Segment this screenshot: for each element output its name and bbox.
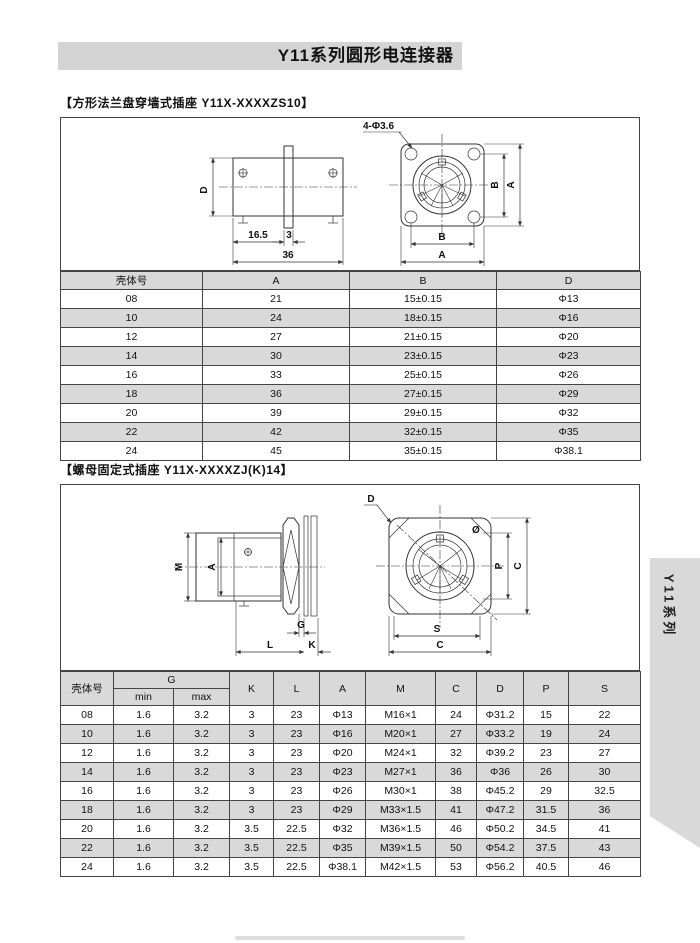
column-header: A — [203, 272, 350, 290]
table-section1: 壳体号ABD 082115±0.15Φ13102418±0.15Φ1612272… — [60, 271, 641, 461]
table-cell: 3.2 — [174, 782, 230, 801]
table-cell: 24 — [569, 725, 641, 744]
technical-drawing-nut-socket: M A G L K D — [61, 485, 639, 670]
contact-spokes — [419, 173, 465, 208]
table-cell: 43 — [569, 839, 641, 858]
table-row: 241.63.23.522.5Φ38.1M42×1.553Φ56.240.546 — [61, 858, 641, 877]
table-cell: 27 — [203, 328, 350, 347]
table-cell: 22 — [569, 706, 641, 725]
column-header: M — [366, 672, 436, 706]
table-cell: Φ39.2 — [477, 744, 524, 763]
table-cell: 3.2 — [174, 744, 230, 763]
column-header: L — [274, 672, 320, 706]
dim-label-b-h: B — [438, 232, 445, 243]
table-cell: 20 — [61, 820, 114, 839]
table-cell: 22.5 — [274, 820, 320, 839]
table-cell: 27 — [569, 744, 641, 763]
table-cell: 34.5 — [524, 820, 569, 839]
table-cell: Φ13 — [320, 706, 366, 725]
table-row: 203929±0.15Φ32 — [61, 404, 641, 423]
table-cell: 29±0.15 — [350, 404, 497, 423]
table-cell: 3.2 — [174, 858, 230, 877]
dim-label-s: S — [434, 624, 441, 635]
dim-label-3: 3 — [286, 230, 292, 241]
table-cell: Φ29 — [320, 801, 366, 820]
table-cell: 3.2 — [174, 801, 230, 820]
table-cell: 14 — [61, 347, 203, 366]
table-cell: 3 — [230, 801, 274, 820]
table-cell: 3.2 — [174, 763, 230, 782]
table-cell: 20 — [61, 404, 203, 423]
technical-drawing-flange-socket: D 16.5 3 36 — [61, 118, 639, 270]
table-cell: 21±0.15 — [350, 328, 497, 347]
table-cell: Φ16 — [320, 725, 366, 744]
column-header: min — [114, 689, 174, 706]
table-cell: 33 — [203, 366, 350, 385]
bottom-bar — [235, 936, 465, 940]
column-header: D — [477, 672, 524, 706]
table-cell: M33×1.5 — [366, 801, 436, 820]
hole-callout-label: 4-Φ3.6 — [363, 121, 394, 132]
table-cell: 3.5 — [230, 858, 274, 877]
column-header: P — [524, 672, 569, 706]
diameter-symbol: Ø — [472, 525, 480, 536]
table-cell: 22 — [61, 839, 114, 858]
table-cell: 08 — [61, 290, 203, 309]
table-cell: M39×1.5 — [366, 839, 436, 858]
dim-label-k: K — [308, 640, 316, 651]
table-cell: 24 — [61, 858, 114, 877]
series-side-tab-label: Y11系列 — [661, 561, 680, 651]
dim-label-a-v: A — [506, 181, 517, 188]
table-cell: 3.2 — [174, 839, 230, 858]
table-cell: 32.5 — [569, 782, 641, 801]
table-cell: 15±0.15 — [350, 290, 497, 309]
table-cell: 1.6 — [114, 839, 174, 858]
table-cell: 3 — [230, 706, 274, 725]
table-cell: 12 — [61, 328, 203, 347]
table-cell: 16 — [61, 782, 114, 801]
table-cell: 23 — [524, 744, 569, 763]
table-cell: 27±0.15 — [350, 385, 497, 404]
table-cell: Φ32 — [320, 820, 366, 839]
table-cell: Φ29 — [497, 385, 641, 404]
table-cell: 35±0.15 — [350, 442, 497, 461]
table-cell: 21 — [203, 290, 350, 309]
dim-label-c-v: C — [513, 562, 524, 569]
table-cell: 18 — [61, 385, 203, 404]
column-header: A — [320, 672, 366, 706]
dim-label-l: L — [267, 640, 273, 651]
table-row: 102418±0.15Φ16 — [61, 309, 641, 328]
table-cell: Φ36 — [477, 763, 524, 782]
table-cell: 3 — [230, 763, 274, 782]
table-cell: 31.5 — [524, 801, 569, 820]
table-cell: 1.6 — [114, 763, 174, 782]
table-cell: Φ45.2 — [477, 782, 524, 801]
table-cell: 41 — [569, 820, 641, 839]
screw-symbol — [244, 548, 252, 556]
table-cell: M30×1 — [366, 782, 436, 801]
table-cell: 24 — [203, 309, 350, 328]
table-cell: 24 — [61, 442, 203, 461]
table-cell: 08 — [61, 706, 114, 725]
series-side-tab: Y11系列 — [650, 558, 700, 848]
table-cell: Φ56.2 — [477, 858, 524, 877]
table-cell: 3.5 — [230, 839, 274, 858]
table-cell: 41 — [436, 801, 477, 820]
table-cell: M16×1 — [366, 706, 436, 725]
dim-label-g: G — [297, 620, 305, 631]
table-cell: Φ35 — [320, 839, 366, 858]
table-cell: 36 — [569, 801, 641, 820]
title-banner: Y11系列圆形电连接器 — [58, 42, 462, 70]
table-cell: M20×1 — [366, 725, 436, 744]
table-cell: 1.6 — [114, 801, 174, 820]
table-row: 141.63.2323Φ23M27×136Φ362630 — [61, 763, 641, 782]
dim-label-36: 36 — [282, 250, 294, 261]
table-cell: 46 — [569, 858, 641, 877]
column-header: B — [350, 272, 497, 290]
table-cell: 32±0.15 — [350, 423, 497, 442]
table-cell: Φ26 — [497, 366, 641, 385]
table-cell: 29 — [524, 782, 569, 801]
table-cell: 23 — [274, 706, 320, 725]
table-cell: 45 — [203, 442, 350, 461]
nut-socket-dimensions-table: 壳体号GKLAMCDPSminmax 081.63.2323Φ13M16×124… — [60, 671, 641, 877]
table-cell: Φ31.2 — [477, 706, 524, 725]
table-cell: 30 — [569, 763, 641, 782]
section2-title: 【螺母固定式插座 Y11X-XXXXZJ(K)14】 — [60, 461, 293, 478]
table-cell: 3 — [230, 782, 274, 801]
table-cell: 22.5 — [274, 858, 320, 877]
table-cell: 38 — [436, 782, 477, 801]
table-cell: Φ50.2 — [477, 820, 524, 839]
table-cell: 1.6 — [114, 744, 174, 763]
table-cell: 3.5 — [230, 820, 274, 839]
table-cell: 1.6 — [114, 725, 174, 744]
table-cell: 23 — [274, 744, 320, 763]
dim-label-a: A — [207, 563, 218, 570]
column-header: max — [174, 689, 230, 706]
table-cell: M27×1 — [366, 763, 436, 782]
column-header: S — [569, 672, 641, 706]
table-cell: 24 — [436, 706, 477, 725]
dim-label-a-h: A — [438, 250, 445, 261]
table-cell: 27 — [436, 725, 477, 744]
table-row: 143023±0.15Φ23 — [61, 347, 641, 366]
table-cell: 36 — [203, 385, 350, 404]
table-row: 121.63.2323Φ20M24×132Φ39.22327 — [61, 744, 641, 763]
column-header: 壳体号 — [61, 272, 203, 290]
table-cell: 23 — [274, 801, 320, 820]
table-cell: 3.2 — [174, 725, 230, 744]
page-title: Y11系列圆形电连接器 — [278, 42, 454, 70]
table-cell: 42 — [203, 423, 350, 442]
table-cell: Φ47.2 — [477, 801, 524, 820]
table-row: 163325±0.15Φ26 — [61, 366, 641, 385]
table-cell: 32 — [436, 744, 477, 763]
dim-label-d: D — [367, 494, 374, 505]
table-cell: Φ13 — [497, 290, 641, 309]
drawing-section2: M A G L K D — [60, 484, 640, 671]
table-cell: 19 — [524, 725, 569, 744]
drawing-section1: D 16.5 3 36 — [60, 117, 640, 271]
table-cell: 50 — [436, 839, 477, 858]
table-cell: 23 — [274, 725, 320, 744]
table-cell: 1.6 — [114, 782, 174, 801]
table-cell: Φ23 — [320, 763, 366, 782]
screw-symbol — [238, 168, 338, 178]
table-cell: 10 — [61, 725, 114, 744]
section1-title: 【方形法兰盘穿墙式插座 Y11X-XXXXZS10】 — [60, 94, 314, 111]
table-row: 081.63.2323Φ13M16×124Φ31.21522 — [61, 706, 641, 725]
table-cell: 25±0.15 — [350, 366, 497, 385]
table-cell: Φ16 — [497, 309, 641, 328]
column-header: K — [230, 672, 274, 706]
dim-label-b-v: B — [490, 181, 501, 188]
table-row: 082115±0.15Φ13 — [61, 290, 641, 309]
table-cell: 22.5 — [274, 839, 320, 858]
table-cell: Φ23 — [497, 347, 641, 366]
table-cell: 3.2 — [174, 820, 230, 839]
table-row: 181.63.2323Φ29M33×1.541Φ47.231.536 — [61, 801, 641, 820]
table-cell: 30 — [203, 347, 350, 366]
table-cell: Φ20 — [497, 328, 641, 347]
table-section2: 壳体号GKLAMCDPSminmax 081.63.2323Φ13M16×124… — [60, 671, 641, 877]
table-cell: 39 — [203, 404, 350, 423]
table-cell: Φ33.2 — [477, 725, 524, 744]
table-cell: 53 — [436, 858, 477, 877]
table-cell: Φ54.2 — [477, 839, 524, 858]
table-cell: Φ38.1 — [320, 858, 366, 877]
table-cell: 16 — [61, 366, 203, 385]
flange-socket-dimensions-table: 壳体号ABD 082115±0.15Φ13102418±0.15Φ1612272… — [60, 271, 641, 461]
table-cell: 18 — [61, 801, 114, 820]
table-cell: 23±0.15 — [350, 347, 497, 366]
table-row: 161.63.2323Φ26M30×138Φ45.22932.5 — [61, 782, 641, 801]
table-cell: 3.2 — [174, 706, 230, 725]
table-cell: 46 — [436, 820, 477, 839]
table-cell: 15 — [524, 706, 569, 725]
table-cell: 1.6 — [114, 706, 174, 725]
table-cell: 1.6 — [114, 858, 174, 877]
column-header: C — [436, 672, 477, 706]
dim-label-p: P — [494, 562, 505, 569]
column-header: G — [114, 672, 230, 689]
table-cell: Φ20 — [320, 744, 366, 763]
table-cell: 3 — [230, 744, 274, 763]
dim-label-16-5: 16.5 — [248, 230, 268, 241]
table-cell: Φ38.1 — [497, 442, 641, 461]
column-header: D — [497, 272, 641, 290]
table-cell: 1.6 — [114, 820, 174, 839]
table-row: 183627±0.15Φ29 — [61, 385, 641, 404]
table-cell: 22 — [61, 423, 203, 442]
datasheet-page: Y11系列圆形电连接器 【方形法兰盘穿墙式插座 Y11X-XXXXZS10】 — [0, 0, 700, 943]
table-cell: Φ26 — [320, 782, 366, 801]
table-row: 122721±0.15Φ20 — [61, 328, 641, 347]
table-cell: 37.5 — [524, 839, 569, 858]
table-cell: Φ32 — [497, 404, 641, 423]
dim-label-d: D — [199, 186, 210, 193]
table-cell: M24×1 — [366, 744, 436, 763]
table-row: 201.63.23.522.5Φ32M36×1.546Φ50.234.541 — [61, 820, 641, 839]
table-cell: 40.5 — [524, 858, 569, 877]
table-cell: 23 — [274, 763, 320, 782]
table-cell: 23 — [274, 782, 320, 801]
table-cell: 12 — [61, 744, 114, 763]
table-cell: 3 — [230, 725, 274, 744]
table-cell: 10 — [61, 309, 203, 328]
table-row: 244535±0.15Φ38.1 — [61, 442, 641, 461]
table-cell: M42×1.5 — [366, 858, 436, 877]
table-row: 224232±0.15Φ35 — [61, 423, 641, 442]
table-cell: 36 — [436, 763, 477, 782]
table-row: 101.63.2323Φ16M20×127Φ33.21924 — [61, 725, 641, 744]
table-cell: M36×1.5 — [366, 820, 436, 839]
table-row: 221.63.23.522.5Φ35M39×1.550Φ54.237.543 — [61, 839, 641, 858]
table-cell: 14 — [61, 763, 114, 782]
table-cell: Φ35 — [497, 423, 641, 442]
table-cell: 26 — [524, 763, 569, 782]
column-header: 壳体号 — [61, 672, 114, 706]
dim-label-m: M — [174, 563, 185, 571]
table-cell: 18±0.15 — [350, 309, 497, 328]
dim-label-c-h: C — [436, 640, 443, 651]
